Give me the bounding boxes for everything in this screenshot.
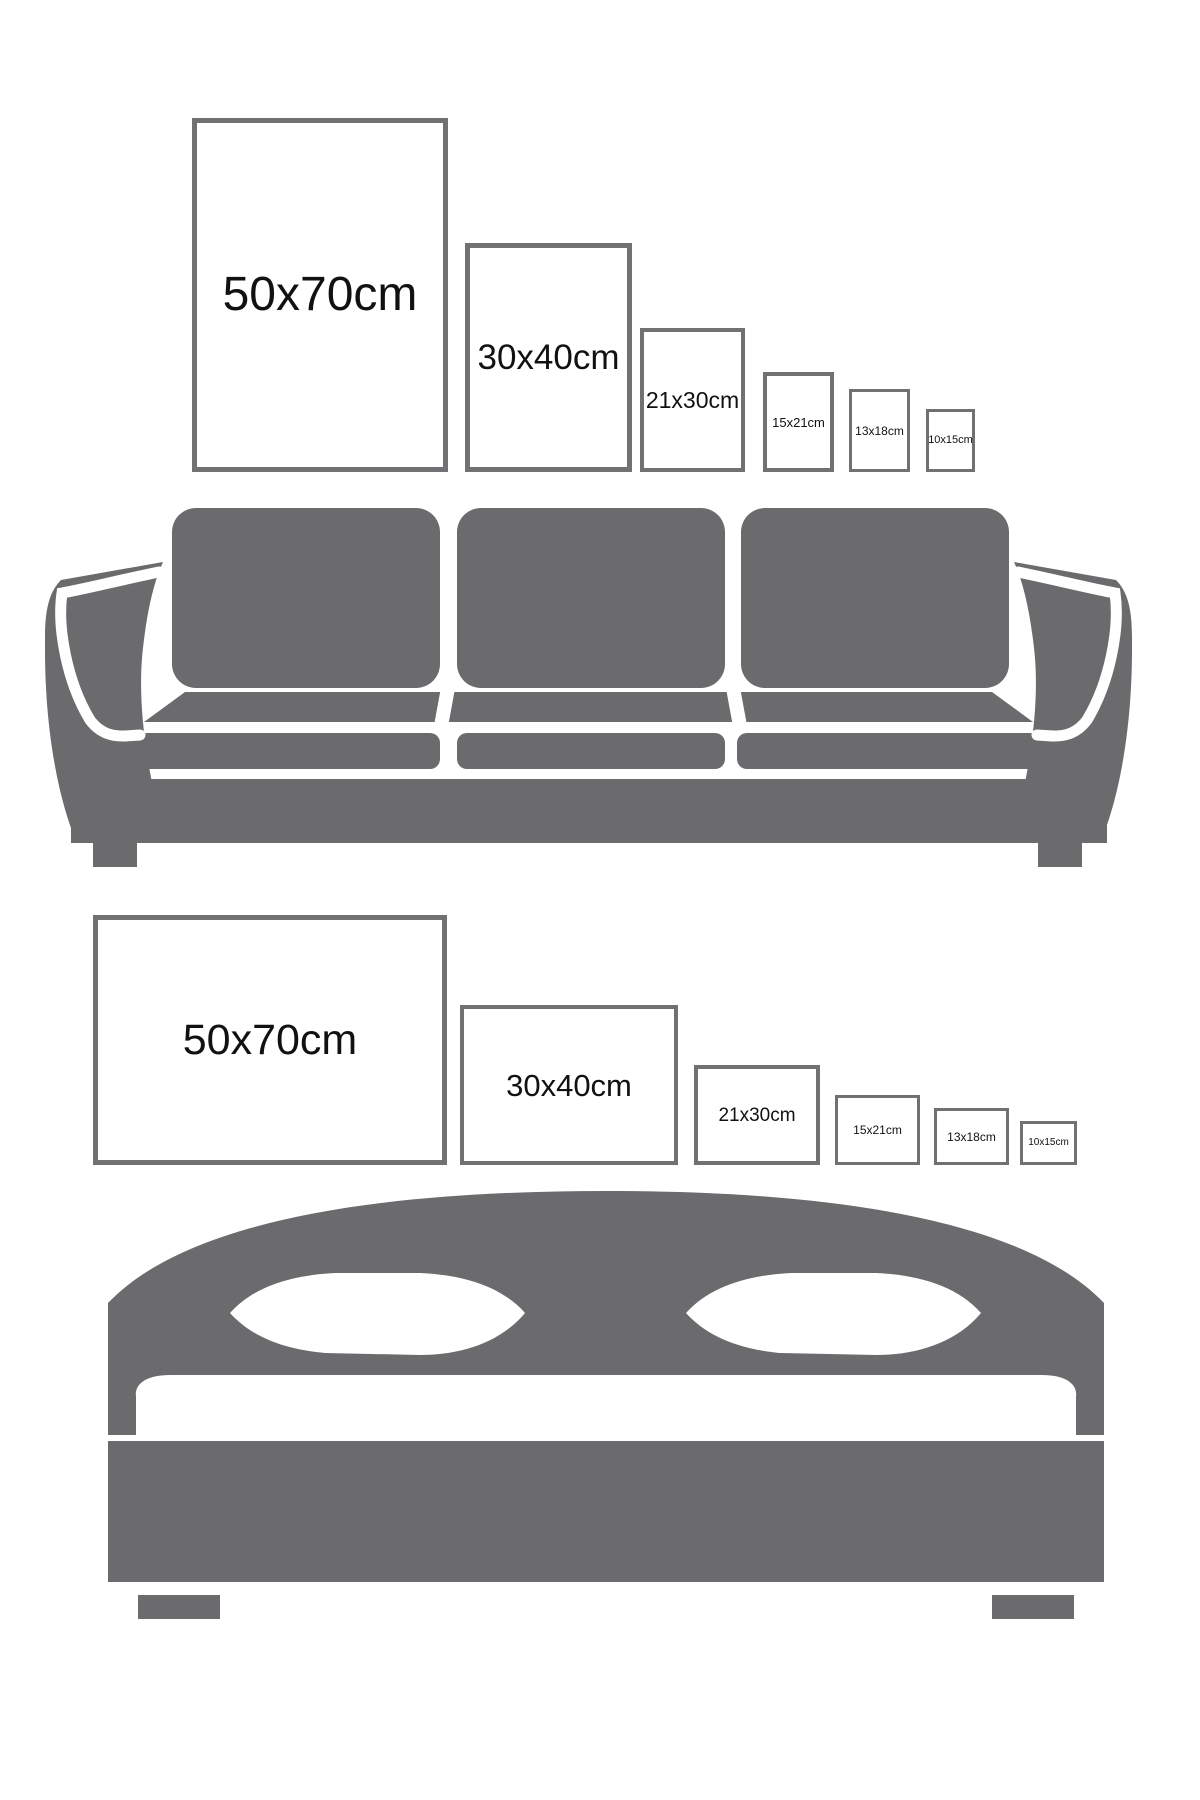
sofa-back-cushion (457, 508, 725, 688)
frame-size-label: 50x70cm (183, 1019, 357, 1062)
frame-portrait-13x18: 13x18cm (849, 389, 910, 472)
frame-size-label: 30x40cm (506, 1070, 632, 1101)
frame-size-label: 50x70cm (223, 271, 418, 319)
frame-size-label: 21x30cm (646, 389, 739, 412)
sofa-deck-seam (441, 688, 448, 726)
frame-size-label: 13x18cm (947, 1131, 996, 1143)
bed-icon (100, 1185, 1112, 1621)
frame-size-label: 21x30cm (718, 1106, 795, 1125)
sofa-deck (144, 692, 1033, 722)
frame-landscape-30x40: 30x40cm (460, 1005, 678, 1165)
sofa-seat-cushion (137, 733, 440, 769)
frame-landscape-50x70: 50x70cm (93, 915, 447, 1165)
frame-landscape-15x21: 15x21cm (835, 1095, 920, 1165)
sofa-right-foot (1038, 843, 1082, 867)
frame-size-label: 10x15cm (928, 435, 973, 446)
sofa-back-cushion (741, 508, 1009, 688)
frame-size-label: 10x15cm (1028, 1138, 1069, 1148)
frame-portrait-21x30: 21x30cm (640, 328, 745, 472)
sofa-icon (45, 470, 1132, 867)
frame-landscape-21x30: 21x30cm (694, 1065, 820, 1165)
bed-base (108, 1441, 1104, 1582)
sofa-deck-seam (733, 688, 740, 726)
size-guide-poster: 50x70cm 30x40cm 21x30cm 15x21cm 13x18cm … (0, 0, 1200, 1800)
bed-right-foot (992, 1595, 1074, 1619)
frame-size-label: 13x18cm (855, 425, 904, 437)
sofa-seat-cushion (457, 733, 725, 769)
frame-landscape-13x18: 13x18cm (934, 1108, 1009, 1165)
sofa-base (71, 779, 1107, 843)
frame-portrait-30x40: 30x40cm (465, 243, 632, 472)
frame-size-label: 15x21cm (853, 1124, 902, 1136)
sofa-seat-cushion (737, 733, 1040, 769)
bed-left-foot (138, 1595, 220, 1619)
frame-portrait-15x21: 15x21cm (763, 372, 834, 472)
frame-portrait-10x15: 10x15cm (926, 409, 975, 472)
frame-size-label: 15x21cm (772, 416, 825, 429)
frame-portrait-50x70: 50x70cm (192, 118, 448, 472)
sofa-left-foot (93, 843, 137, 867)
frame-size-label: 30x40cm (477, 340, 619, 375)
sofa-back-cushion (172, 508, 440, 688)
frame-landscape-10x15: 10x15cm (1020, 1121, 1077, 1165)
